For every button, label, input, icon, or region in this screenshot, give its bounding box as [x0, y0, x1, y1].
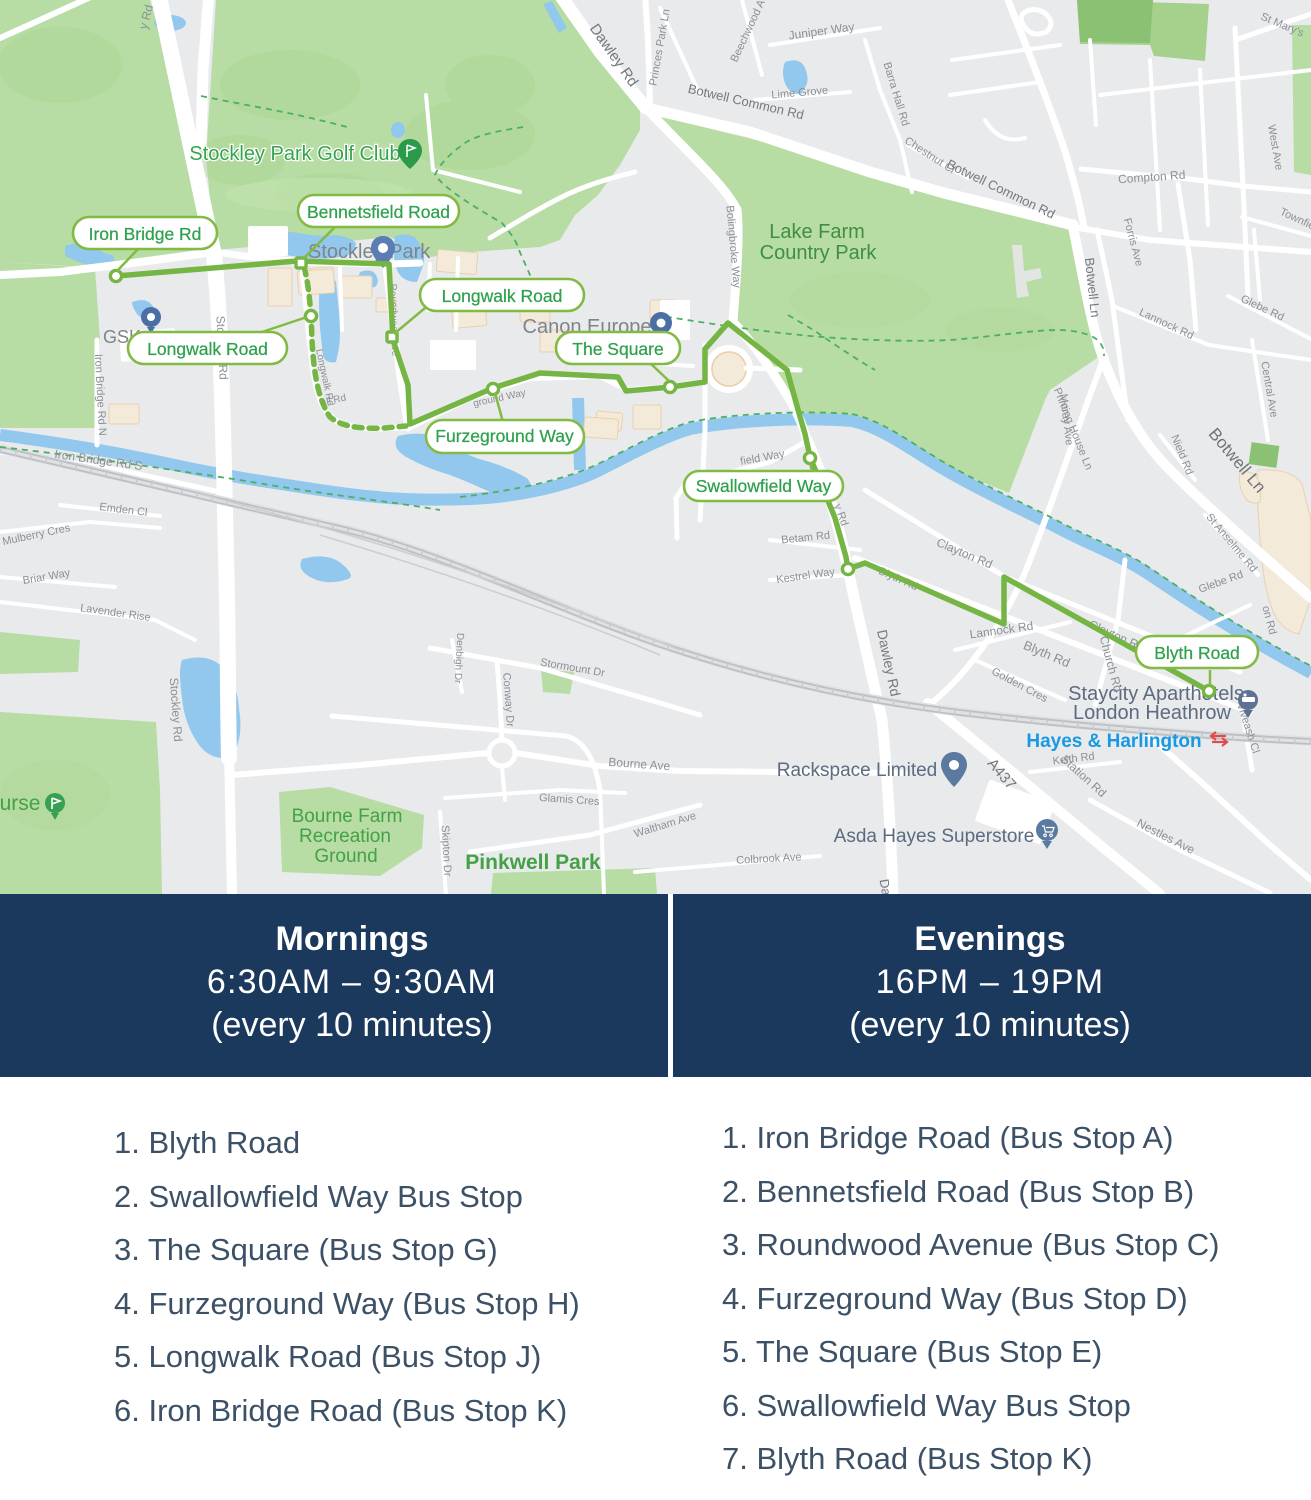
svg-text:Iron Bridge Rd: Iron Bridge Rd: [89, 224, 202, 244]
svg-text:Ground: Ground: [314, 846, 377, 867]
svg-text:Country Park: Country Park: [760, 242, 878, 264]
svg-text:Stockley Park Golf Club: Stockley Park Golf Club: [189, 143, 400, 165]
svg-text:Bennetsfield Road: Bennetsfield Road: [307, 202, 450, 222]
svg-text:Pinkwell Park: Pinkwell Park: [465, 851, 601, 874]
svg-text:Swallowfield Way: Swallowfield Way: [696, 476, 832, 496]
svg-text:Longwalk Road: Longwalk Road: [442, 286, 563, 306]
svg-text:Rackspace Limited: Rackspace Limited: [777, 760, 938, 781]
svg-text:Longwalk Road: Longwalk Road: [147, 339, 268, 359]
svg-text:Asda Hayes Superstore: Asda Hayes Superstore: [834, 826, 1035, 847]
svg-text:urse: urse: [0, 792, 40, 815]
svg-text:The Square: The Square: [572, 339, 663, 359]
svg-text:London Heathrow: London Heathrow: [1073, 702, 1231, 724]
svg-text:Lake Farm: Lake Farm: [769, 221, 865, 243]
svg-text:Recreation: Recreation: [299, 826, 391, 847]
svg-text:Bourne Farm: Bourne Farm: [292, 806, 403, 827]
svg-text:Hayes & Harlington: Hayes & Harlington: [1026, 731, 1201, 752]
svg-text:Furzeground Way: Furzeground Way: [435, 426, 574, 446]
svg-text:Blyth Road: Blyth Road: [1154, 643, 1240, 663]
svg-text:Da: Da: [877, 878, 895, 894]
